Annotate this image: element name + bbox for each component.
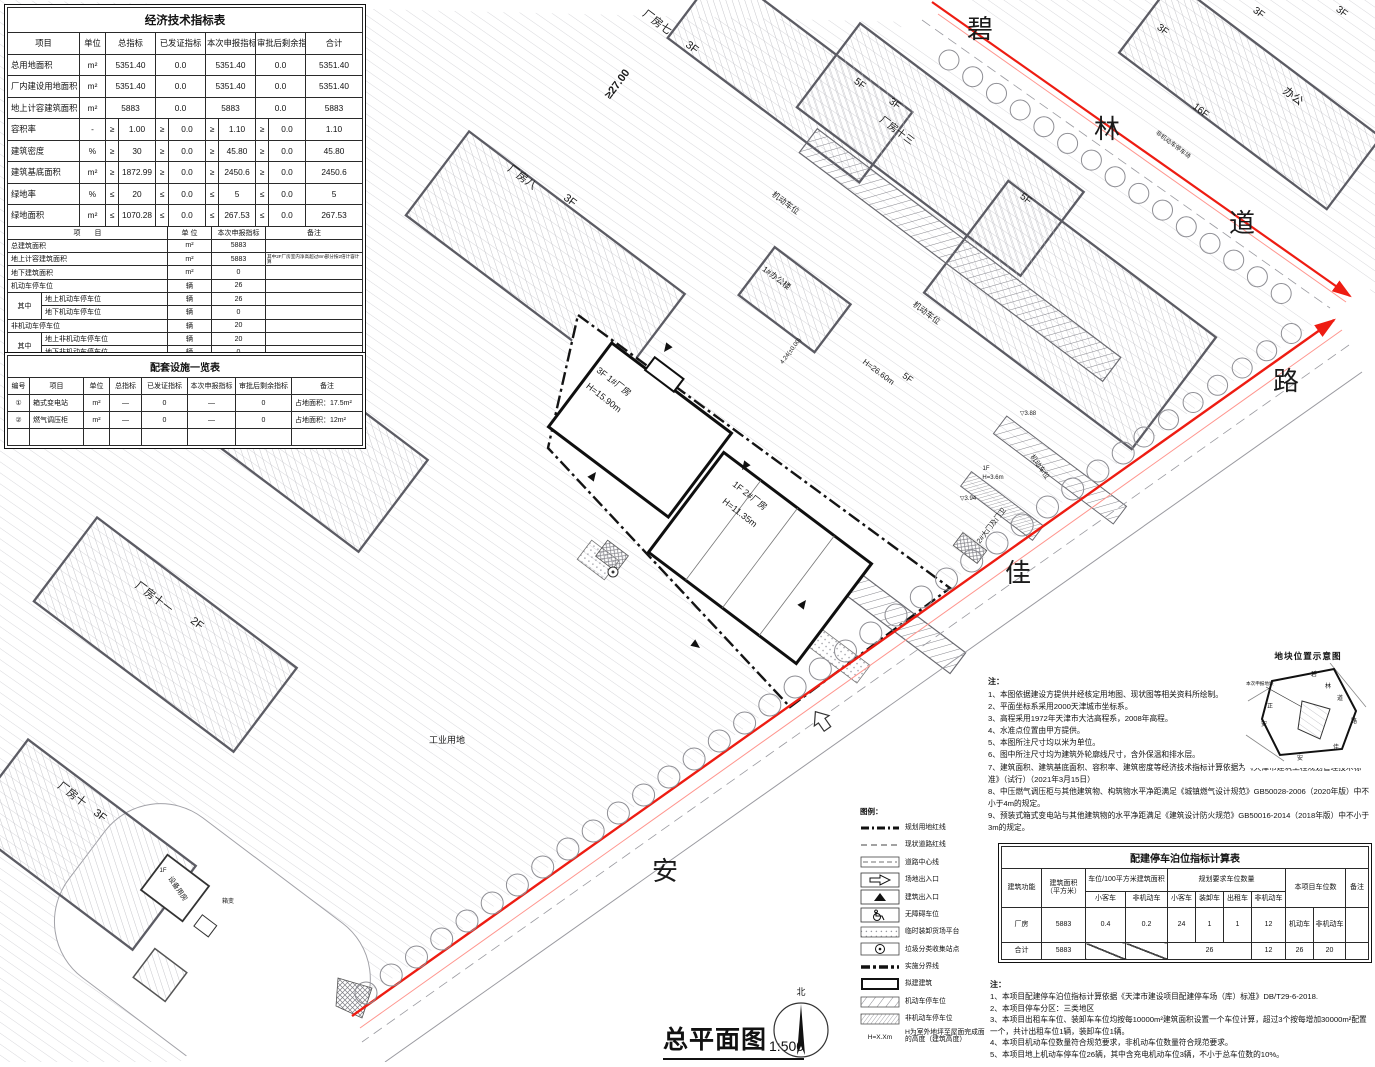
table-cell (1346, 908, 1369, 943)
table-cell: m² (80, 76, 106, 98)
table-cell: m² (168, 239, 212, 252)
table-cell: 其中 (8, 292, 42, 319)
table-cell: 5883 (1042, 943, 1086, 960)
location-road-char: 林 (1325, 682, 1331, 690)
table-cell: 辆 (168, 292, 212, 305)
table-cell: 本次申报指标 (212, 226, 266, 239)
table-cell: ≥ (106, 119, 119, 141)
table-cell: 1.10 (306, 119, 363, 141)
table-cell: % (80, 183, 106, 205)
table-cell: 20 (212, 332, 266, 345)
table-cell: ≤ (156, 183, 169, 205)
legend-label: 拟建建筑 (905, 980, 932, 987)
table-cell: 地上机动车停车位 (42, 292, 168, 305)
table-cell: 5351.40 (206, 54, 256, 76)
table-cell: 非机动车 (1126, 892, 1168, 908)
table-cell: 已发证指标 (156, 33, 206, 55)
table-cell: ≥ (106, 140, 119, 162)
legend-label: 临时装卸货场平台 (905, 928, 959, 935)
econ-indicator-panel: 经济技术指标表 项目单位总指标已发证指标本次申报指标审批后剩余指标合计总用地面积… (4, 4, 366, 362)
legend-item-circle-dot: 垃圾分类收集站点 (860, 941, 990, 958)
legend-label: 垃圾分类收集站点 (905, 946, 959, 953)
table-cell (30, 429, 84, 446)
table-cell: 辆 (168, 279, 212, 292)
table-cell: 辆 (168, 319, 212, 332)
table-cell: 2450.6 (219, 162, 256, 184)
table-cell: 0 (142, 412, 188, 429)
table-cell: 本次申报指标 (206, 33, 256, 55)
plan-annotation: 佳 (1005, 559, 1031, 588)
table-cell: 编号 (8, 378, 30, 395)
plan-annotation: 箱变 (222, 897, 234, 905)
facilities-table-title: 配套设施一览表 (7, 355, 363, 377)
table-cell: 0 (212, 266, 266, 279)
parking-notes-title: 注： (990, 979, 1374, 991)
table-cell (1346, 943, 1369, 960)
table-cell: 0.0 (169, 162, 206, 184)
rect-icon (860, 977, 900, 991)
table-cell: 5883 (212, 239, 266, 252)
table-cell: 0.0 (256, 76, 306, 98)
table-cell: 总指标 (110, 378, 142, 395)
legend-label: 现状道路红线 (905, 841, 946, 848)
table-cell (266, 319, 363, 332)
econ-table-sub: 项 目单 位本次申报指标备注总建筑面积m²5883地上计容建筑面积m²5883其… (7, 226, 363, 360)
legend-item-hatch-vert: 非机动车停车位 (860, 1010, 990, 1027)
table-cell: 267.53 (306, 205, 363, 227)
table-cell: 0.0 (269, 119, 306, 141)
accessible-icon (860, 907, 900, 923)
legend-label: 无障碍车位 (905, 911, 939, 918)
table-cell: 机动车 (1286, 908, 1314, 943)
table-cell: 5883 (306, 97, 363, 119)
table-cell: 45.80 (219, 140, 256, 162)
table-cell: 备注 (266, 226, 363, 239)
plan-annotation: ▽3.88 (1020, 411, 1037, 417)
plan-annotation: ▽3.94 (960, 496, 977, 502)
table-cell: ① (8, 395, 30, 412)
table-cell: 单位 (84, 378, 110, 395)
table-cell (266, 266, 363, 279)
table-cell: 24 (1168, 908, 1196, 943)
table-cell: 20 (212, 319, 266, 332)
location-road-char: 碧 (1311, 670, 1317, 678)
table-cell: 建筑密度 (8, 140, 80, 162)
table-cell: 辆 (168, 306, 212, 319)
legend-label: 规划用地红线 (905, 824, 946, 831)
table-cell: m² (80, 162, 106, 184)
table-cell: 占地面积：12m² (292, 412, 363, 429)
table-cell: — (188, 412, 236, 429)
legend-item-dots: 临时装卸货场平台 (860, 923, 990, 940)
legend-item-centerline: 道路中心线 (860, 854, 990, 871)
note-line: 2、本项目停车分区：三类地区 (990, 1003, 1374, 1015)
table-cell (266, 292, 363, 305)
plan-annotation: 1F (159, 868, 166, 874)
table-cell: ≥ (206, 162, 219, 184)
table-cell: 绿地率 (8, 183, 80, 205)
table-cell: 非机动车 (1314, 908, 1346, 943)
table-cell: ≥ (156, 140, 169, 162)
table-cell: 0.0 (156, 97, 206, 119)
econ-table-title: 经济技术指标表 (7, 7, 363, 32)
table-cell: 5351.40 (106, 76, 156, 98)
legend-item-solid-arrow: 建筑出入口 (860, 889, 990, 906)
table-cell: 合计 (1002, 943, 1042, 960)
table-cell: 1872.99 (119, 162, 156, 184)
table-cell: ≤ (156, 205, 169, 227)
table-cell: 0.0 (169, 140, 206, 162)
table-cell: 绿地面积 (8, 205, 80, 227)
table-cell: 267.53 (219, 205, 256, 227)
parking-notes-list: 1、本项目配建停车泊位指标计算依据《天津市建设项目配建停车场（库）标准》DB/T… (990, 991, 1374, 1060)
table-cell: 非机动车 (1252, 892, 1286, 908)
legend-label: 实施分界线 (905, 963, 939, 970)
table-cell: 本次申报指标 (188, 378, 236, 395)
location-diagram-title: 地块位置示意图 (1244, 650, 1372, 662)
circle-dot-icon (860, 942, 900, 956)
legend-item-hatch-diag: 机动车停车位 (860, 993, 990, 1010)
table-cell: 容积率 (8, 119, 80, 141)
table-cell: 1.10 (219, 119, 256, 141)
location-road-char: 安 (1297, 754, 1303, 762)
legend-item-accessible: 无障碍车位 (860, 906, 990, 923)
table-cell: — (110, 395, 142, 412)
table-cell: ≥ (256, 140, 269, 162)
legend-label: H为室外地坪至屋面完成面的高度（建筑高度） (905, 1029, 990, 1044)
legend-items: 规划用地红线现状道路红线道路中心线场地出入口建筑出入口无障碍车位临时装卸货场平台… (860, 819, 990, 1045)
table-cell: 地上计容建筑面积 (8, 253, 168, 266)
table-cell: 小客车 (1086, 892, 1126, 908)
table-cell: m² (84, 395, 110, 412)
centerline-icon (860, 855, 900, 869)
table-cell: 合计 (306, 33, 363, 55)
plan-annotation: 林 (1094, 115, 1120, 144)
table-cell: 0.0 (269, 140, 306, 162)
plan-annotation: H=3.6m (982, 475, 1003, 481)
table-cell: 12 (1252, 943, 1286, 960)
dashdot-icon (860, 822, 900, 834)
table-cell: 地下建筑面积 (8, 266, 168, 279)
table-cell: 0.0 (156, 76, 206, 98)
table-cell: 地上非机动车停车位 (42, 332, 168, 345)
table-cell: 建筑功能 (1002, 869, 1042, 908)
table-cell: ≤ (256, 183, 269, 205)
note-line: 9、预装式箱式变电站与其他建筑物的水平净距满足《建筑设计防火规范》GB50016… (988, 810, 1372, 834)
table-cell: 占地面积：17.5m² (292, 395, 363, 412)
table-cell: m² (80, 97, 106, 119)
dots-icon (860, 925, 900, 939)
table-cell: 26 (1286, 943, 1314, 960)
table-cell: 0 (212, 306, 266, 319)
table-cell (266, 332, 363, 345)
table-cell (1086, 943, 1126, 960)
table-cell (236, 429, 292, 446)
legend-label: 场地出入口 (905, 876, 939, 883)
table-cell: 45.80 (306, 140, 363, 162)
table-cell: 机动车停车位 (8, 279, 168, 292)
table-cell: 建筑面积（平方米） (1042, 869, 1086, 908)
table-cell: 0 (236, 395, 292, 412)
table-cell: 26 (212, 292, 266, 305)
location-road-char: 正 (1267, 703, 1273, 710)
plan-annotation: 1F (982, 466, 989, 472)
table-cell: 5351.40 (206, 76, 256, 98)
dashed-icon (860, 839, 900, 851)
table-cell: 其中2F厂房室内净高超过8m部分按2倍计容计算 (266, 253, 363, 266)
legend-panel: 图例： 规划用地红线现状道路红线道路中心线场地出入口建筑出入口无障碍车位临时装卸… (860, 806, 990, 1045)
table-cell: 1070.28 (119, 205, 156, 227)
table-cell: 项目 (30, 378, 84, 395)
table-cell: 0.0 (256, 97, 306, 119)
table-cell: ≤ (206, 205, 219, 227)
waste-collection-point-dot (612, 571, 615, 574)
table-cell: 已发证指标 (142, 378, 188, 395)
legend-label: 建筑出入口 (905, 894, 939, 901)
table-cell: 总用地面积 (8, 54, 80, 76)
table-cell: 车位/100平方米建筑面积 (1086, 869, 1168, 892)
table-cell: 20 (119, 183, 156, 205)
table-cell (266, 279, 363, 292)
table-cell (142, 429, 188, 446)
plan-annotation: 道 (1229, 209, 1255, 238)
table-cell: 1.00 (119, 119, 156, 141)
table-cell: 审批后剩余指标 (256, 33, 306, 55)
hatch-vert-icon (860, 1012, 900, 1026)
table-cell: 小客车 (1168, 892, 1196, 908)
legend-item-hollow-arrow: 场地出入口 (860, 871, 990, 888)
table-cell: 规划要求车位数量 (1168, 869, 1286, 892)
location-road-char: 道 (1337, 694, 1343, 702)
table-cell: 项 目 (8, 226, 168, 239)
dashdot-heavy-icon (860, 961, 900, 973)
legend-item-dashdot: 规划用地红线 (860, 819, 990, 836)
note-line: 8、中压燃气调压柜与其他建筑物、构筑物水平净距满足《城镇燃气设计规范》GB500… (988, 786, 1372, 810)
facilities-panel: 配套设施一览表 编号项目单位总指标已发证指标本次申报指标审批后剩余指标备注①箱式… (4, 352, 366, 449)
north-label: 北 (796, 987, 805, 997)
table-cell: 1 (1196, 908, 1224, 943)
table-cell (8, 429, 30, 446)
table-cell: 5351.40 (306, 76, 363, 98)
table-cell (1126, 943, 1168, 960)
table-cell: 5 (219, 183, 256, 205)
hatch-diag-icon (860, 995, 900, 1009)
legend-item-rect: 拟建建筑 (860, 976, 990, 993)
svg-text:H=X.Xm: H=X.Xm (868, 1034, 892, 1041)
table-cell: ≥ (206, 119, 219, 141)
table-cell: 0.0 (269, 205, 306, 227)
table-cell: 0.0 (169, 205, 206, 227)
table-cell: 20 (1314, 943, 1346, 960)
table-cell (266, 239, 363, 252)
note-line: 5、本项目地上机动车停车位26辆，其中含充电机动车位3辆，不小于总车位数的10%… (990, 1049, 1374, 1061)
table-cell: 燃气调压柜 (30, 412, 84, 429)
table-cell: m² (80, 205, 106, 227)
location-plot-label: 本次申报地块 (1246, 680, 1274, 687)
legend-item-dashed: 现状道路红线 (860, 836, 990, 853)
location-diagram-map: 本次申报地块 碧林道路佳安正安 (1244, 663, 1372, 763)
table-cell: 0.0 (269, 162, 306, 184)
table-cell: 0 (236, 412, 292, 429)
table-cell: 箱式变电站 (30, 395, 84, 412)
parking-notes: 注： 1、本项目配建停车泊位指标计算依据《天津市建设项目配建停车场（库）标准》D… (990, 979, 1374, 1060)
table-cell: 非机动车停车位 (8, 319, 168, 332)
table-cell: 0.0 (169, 119, 206, 141)
table-cell: — (110, 412, 142, 429)
table-cell: 厂房 (1002, 908, 1042, 943)
table-cell: 30 (119, 140, 156, 162)
sheet-title: 总平面图 (663, 1020, 767, 1056)
plan-annotation: 路 (1273, 367, 1299, 396)
table-cell: 5883 (1042, 908, 1086, 943)
table-cell: 5883 (206, 97, 256, 119)
note-line: 3、本项目出租车车位、装卸车车位均按每10000m²建筑面积设置一个车位计算，超… (990, 1014, 1374, 1037)
table-cell: 0 (142, 395, 188, 412)
location-diagram: 地块位置示意图 本次申报地块 碧林道路佳安正安 (1244, 650, 1372, 768)
table-cell: ≤ (256, 205, 269, 227)
table-cell: 5351.40 (106, 54, 156, 76)
plan-annotation: 碧 (967, 15, 993, 44)
table-cell: 建筑基底面积 (8, 162, 80, 184)
table-cell: 本项目车位数 (1286, 869, 1346, 908)
table-cell: 5883 (212, 253, 266, 266)
table-cell: 26 (212, 279, 266, 292)
table-cell: 地下机动车停车位 (42, 306, 168, 319)
legend-title: 图例： (860, 806, 990, 817)
table-cell: ≥ (206, 140, 219, 162)
table-cell: 总建筑面积 (8, 239, 168, 252)
note-line: 1、本项目配建停车泊位指标计算依据《天津市建设项目配建停车场（库）标准》DB/T… (990, 991, 1374, 1003)
parking-table: 建筑功能建筑面积（平方米）车位/100平方米建筑面积规划要求车位数量本项目车位数… (1001, 868, 1369, 960)
parking-table-title: 配建停车泊位指标计算表 (1001, 846, 1369, 868)
table-cell: 0.0 (156, 54, 206, 76)
table-cell: m² (168, 266, 212, 279)
legend-item-htext: H=X.XmH为室外地坪至屋面完成面的高度（建筑高度） (860, 1028, 990, 1045)
table-cell: m² (84, 412, 110, 429)
table-cell: m² (168, 253, 212, 266)
table-cell (110, 429, 142, 446)
table-cell: 单位 (80, 33, 106, 55)
table-cell: 5883 (106, 97, 156, 119)
table-cell: 0.0 (256, 54, 306, 76)
table-cell: 地上计容建筑面积 (8, 97, 80, 119)
north-compass: 北 (770, 984, 832, 1067)
table-cell: ≥ (256, 119, 269, 141)
legend-label: 非机动车停车位 (905, 1015, 953, 1022)
table-cell: - (80, 119, 106, 141)
table-cell: 0.4 (1086, 908, 1126, 943)
note-line: 4、本项目机动车位数量符合规范要求，非机动车位数量符合规范要求。 (990, 1037, 1374, 1049)
table-cell: 辆 (168, 332, 212, 345)
facilities-table: 编号项目单位总指标已发证指标本次申报指标审批后剩余指标备注①箱式变电站m²—0—… (7, 377, 363, 446)
north-arrow-icon (797, 1004, 805, 1055)
table-cell (188, 429, 236, 446)
hollow-arrow-icon (860, 872, 900, 888)
table-cell: % (80, 140, 106, 162)
table-cell: 0.2 (1126, 908, 1168, 943)
table-cell (84, 429, 110, 446)
table-cell: 26 (1168, 943, 1252, 960)
table-cell: ≥ (256, 162, 269, 184)
table-cell: 12 (1252, 908, 1286, 943)
htext-icon: H=X.Xm (860, 1030, 900, 1042)
table-cell: 厂内建设用地面积 (8, 76, 80, 98)
table-cell: 0.0 (169, 183, 206, 205)
table-cell: 项目 (8, 33, 80, 55)
table-cell: m² (80, 54, 106, 76)
table-cell: ≥ (156, 119, 169, 141)
table-cell: — (188, 395, 236, 412)
table-cell: 出租车 (1224, 892, 1252, 908)
table-cell: ② (8, 412, 30, 429)
plan-annotation: 安 (652, 857, 678, 886)
econ-table-main: 项目单位总指标已发证指标本次申报指标审批后剩余指标合计总用地面积m²5351.4… (7, 32, 363, 227)
table-cell: 5351.40 (306, 54, 363, 76)
table-cell (292, 429, 363, 446)
table-cell: 审批后剩余指标 (236, 378, 292, 395)
location-road-char: 佳 (1333, 743, 1339, 751)
table-cell: 装卸车 (1196, 892, 1224, 908)
table-cell: ≤ (106, 183, 119, 205)
site-plan-sheet: { "sheet": {"title": "总平面图", "scale": "1… (0, 0, 1375, 1062)
table-cell: 单 位 (168, 226, 212, 239)
solid-arrow-icon (860, 889, 900, 905)
table-cell: ≥ (156, 162, 169, 184)
table-cell: 备注 (292, 378, 363, 395)
table-cell (266, 306, 363, 319)
location-road-char: 路 (1351, 717, 1357, 725)
table-cell: 0.0 (269, 183, 306, 205)
legend-label: 道路中心线 (905, 859, 939, 866)
legend-item-dashdot-heavy: 实施分界线 (860, 958, 990, 975)
legend-label: 机动车停车位 (905, 998, 946, 1005)
table-cell: 2450.6 (306, 162, 363, 184)
table-cell: 备注 (1346, 869, 1369, 908)
table-cell: ≤ (206, 183, 219, 205)
parking-panel: 配建停车泊位指标计算表 建筑功能建筑面积（平方米）车位/100平方米建筑面积规划… (998, 843, 1372, 963)
table-cell: 1 (1224, 908, 1252, 943)
plan-annotation: 工业用地 (429, 734, 465, 745)
table-cell: 5 (306, 183, 363, 205)
table-cell: ≥ (106, 162, 119, 184)
table-cell: ≤ (106, 205, 119, 227)
location-road-char: 安 (1261, 720, 1267, 728)
table-cell: 总指标 (106, 33, 156, 55)
